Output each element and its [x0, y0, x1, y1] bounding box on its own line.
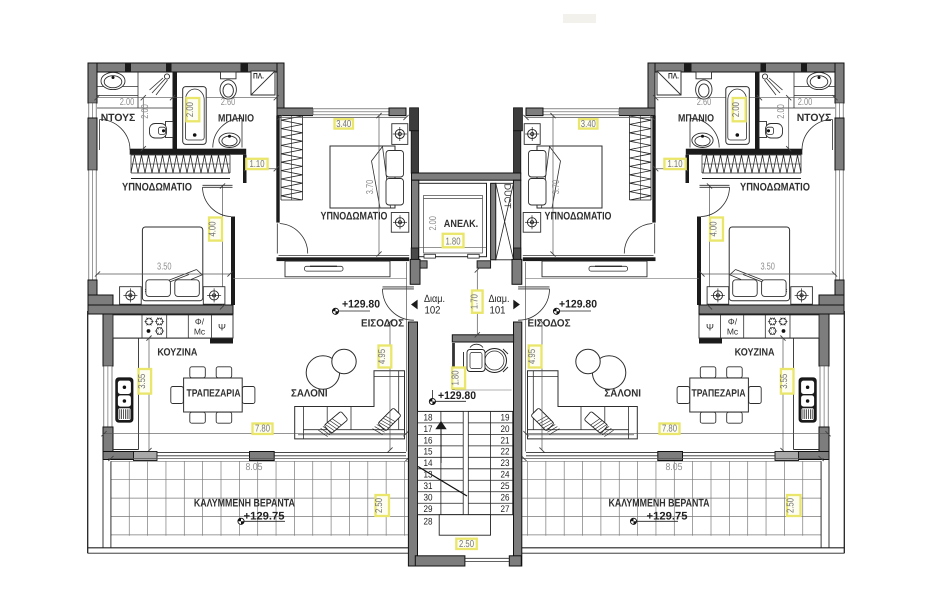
svg-text:ΝΤΟΥΣ: ΝΤΟΥΣ [797, 112, 832, 124]
svg-text:2.00: 2.00 [185, 102, 196, 117]
svg-text:3.40: 3.40 [581, 119, 596, 130]
svg-text:8.05: 8.05 [246, 462, 263, 473]
svg-text:ΥΠΝΟΔΩΜΑΤΙΟ: ΥΠΝΟΔΩΜΑΤΙΟ [122, 182, 192, 194]
svg-text:+129.80: +129.80 [559, 299, 597, 311]
svg-text:DUCT: DUCT [502, 184, 513, 209]
svg-text:+129.80: +129.80 [342, 299, 380, 311]
svg-text:ΚΑΛΥΜΜΕΝΗ ΒΕΡΑΝΤΑ: ΚΑΛΥΜΜΕΝΗ ΒΕΡΑΝΤΑ [609, 498, 710, 510]
svg-text:28: 28 [424, 517, 433, 528]
svg-text:ΜΠΑΝΙΟ: ΜΠΑΝΙΟ [218, 113, 254, 125]
svg-text:7.80: 7.80 [255, 424, 270, 435]
svg-text:16: 16 [424, 435, 433, 446]
svg-text:ΑΝΕΛΚ.: ΑΝΕΛΚ. [444, 218, 478, 230]
svg-text:ΥΠΝΟΔΩΜΑΤΙΟ: ΥΠΝΟΔΩΜΑΤΙΟ [740, 182, 810, 194]
svg-text:20: 20 [501, 424, 510, 435]
svg-text:2.00: 2.00 [798, 97, 813, 108]
svg-text:ΚΑΛΥΜΜΕΝΗ ΒΕΡΑΝΤΑ: ΚΑΛΥΜΜΕΝΗ ΒΕΡΑΝΤΑ [194, 498, 295, 510]
svg-text:+129.80: +129.80 [438, 390, 476, 402]
svg-text:3.55: 3.55 [137, 373, 148, 388]
svg-text:3.40: 3.40 [336, 119, 351, 130]
svg-text:4.00: 4.00 [208, 221, 219, 236]
svg-text:ΚΟΥΖΙΝΑ: ΚΟΥΖΙΝΑ [157, 347, 197, 359]
svg-text:ΣΑΛΟΝΙ: ΣΑΛΟΝΙ [604, 388, 641, 400]
svg-text:23: 23 [501, 458, 510, 469]
svg-text:14: 14 [424, 458, 433, 469]
svg-text:2.00: 2.00 [428, 216, 439, 231]
svg-text:2.00: 2.00 [731, 102, 742, 117]
svg-text:ΥΠΝΟΔΩΜΑΤΙΟ: ΥΠΝΟΔΩΜΑΤΙΟ [321, 211, 388, 223]
svg-text:3.55: 3.55 [779, 373, 790, 388]
svg-text:2.60: 2.60 [697, 97, 712, 108]
svg-text:102: 102 [425, 305, 441, 317]
svg-text:ΜΠΑΝΙΟ: ΜΠΑΝΙΟ [678, 113, 714, 125]
svg-text:21: 21 [501, 435, 510, 446]
svg-text:25: 25 [501, 481, 510, 492]
svg-text:18: 18 [424, 412, 433, 423]
svg-text:Διαμ.: Διαμ. [489, 293, 510, 305]
svg-text:24: 24 [501, 470, 510, 481]
svg-text:1.80: 1.80 [446, 236, 461, 247]
svg-text:ΤΡΑΠΕΖΑΡΙΑ: ΤΡΑΠΕΖΑΡΙΑ [692, 388, 746, 400]
svg-text:2.00: 2.00 [776, 104, 787, 119]
svg-text:Φ/: Φ/ [728, 317, 738, 327]
svg-text:2.50: 2.50 [459, 539, 474, 550]
svg-text:4.95: 4.95 [527, 349, 538, 364]
svg-text:1.10: 1.10 [250, 159, 265, 170]
svg-text:2.50: 2.50 [786, 498, 797, 513]
svg-text:30: 30 [424, 493, 433, 504]
svg-text:3.50: 3.50 [760, 262, 775, 273]
svg-text:1.70: 1.70 [469, 294, 480, 309]
svg-text:19: 19 [501, 412, 510, 423]
svg-text:Ψ: Ψ [218, 323, 226, 334]
svg-text:Mc: Mc [727, 327, 739, 337]
svg-text:1.80: 1.80 [451, 370, 462, 385]
svg-text:3.70: 3.70 [551, 179, 562, 194]
svg-text:Φ/: Φ/ [195, 317, 205, 327]
svg-text:ΚΟΥΖΙΝΑ: ΚΟΥΖΙΝΑ [735, 347, 775, 359]
svg-text:ΣΑΛΟΝΙ: ΣΑΛΟΝΙ [291, 388, 328, 400]
svg-text:7.80: 7.80 [662, 424, 677, 435]
svg-text:Ψ: Ψ [706, 323, 714, 334]
svg-text:2.00: 2.00 [120, 97, 135, 108]
svg-text:2.50: 2.50 [374, 498, 385, 513]
svg-text:ΠΛ.: ΠΛ. [253, 72, 264, 81]
svg-text:Διαμ.: Διαμ. [424, 293, 445, 305]
svg-text:3.70: 3.70 [365, 179, 376, 194]
svg-text:26: 26 [501, 493, 510, 504]
svg-text:29: 29 [424, 504, 433, 515]
svg-text:2.00: 2.00 [140, 104, 151, 119]
svg-text:ΠΛ.: ΠΛ. [668, 72, 679, 81]
svg-text:22: 22 [501, 447, 510, 458]
svg-text:ΝΤΟΥΣ: ΝΤΟΥΣ [101, 112, 136, 124]
svg-text:ΕΙΣΟΔΟΣ: ΕΙΣΟΔΟΣ [528, 318, 571, 330]
svg-text:4.00: 4.00 [709, 221, 720, 236]
svg-text:15: 15 [424, 447, 433, 458]
svg-text:Mc: Mc [194, 327, 206, 337]
svg-text:13: 13 [424, 470, 433, 481]
svg-text:27: 27 [501, 504, 510, 515]
svg-text:1.10: 1.10 [668, 159, 683, 170]
svg-text:8.05: 8.05 [666, 462, 683, 473]
svg-text:31: 31 [424, 481, 433, 492]
svg-text:ΤΡΑΠΕΖΑΡΙΑ: ΤΡΑΠΕΖΑΡΙΑ [187, 388, 241, 400]
svg-text:3.50: 3.50 [157, 262, 172, 273]
svg-text:4.95: 4.95 [377, 349, 388, 364]
svg-text:ΥΠΝΟΔΩΜΑΤΙΟ: ΥΠΝΟΔΩΜΑΤΙΟ [545, 211, 612, 223]
svg-text:101: 101 [490, 305, 506, 317]
svg-text:17: 17 [424, 424, 433, 435]
svg-text:2.60: 2.60 [221, 97, 236, 108]
svg-text:ΕΙΣΟΔΟΣ: ΕΙΣΟΔΟΣ [361, 318, 404, 330]
